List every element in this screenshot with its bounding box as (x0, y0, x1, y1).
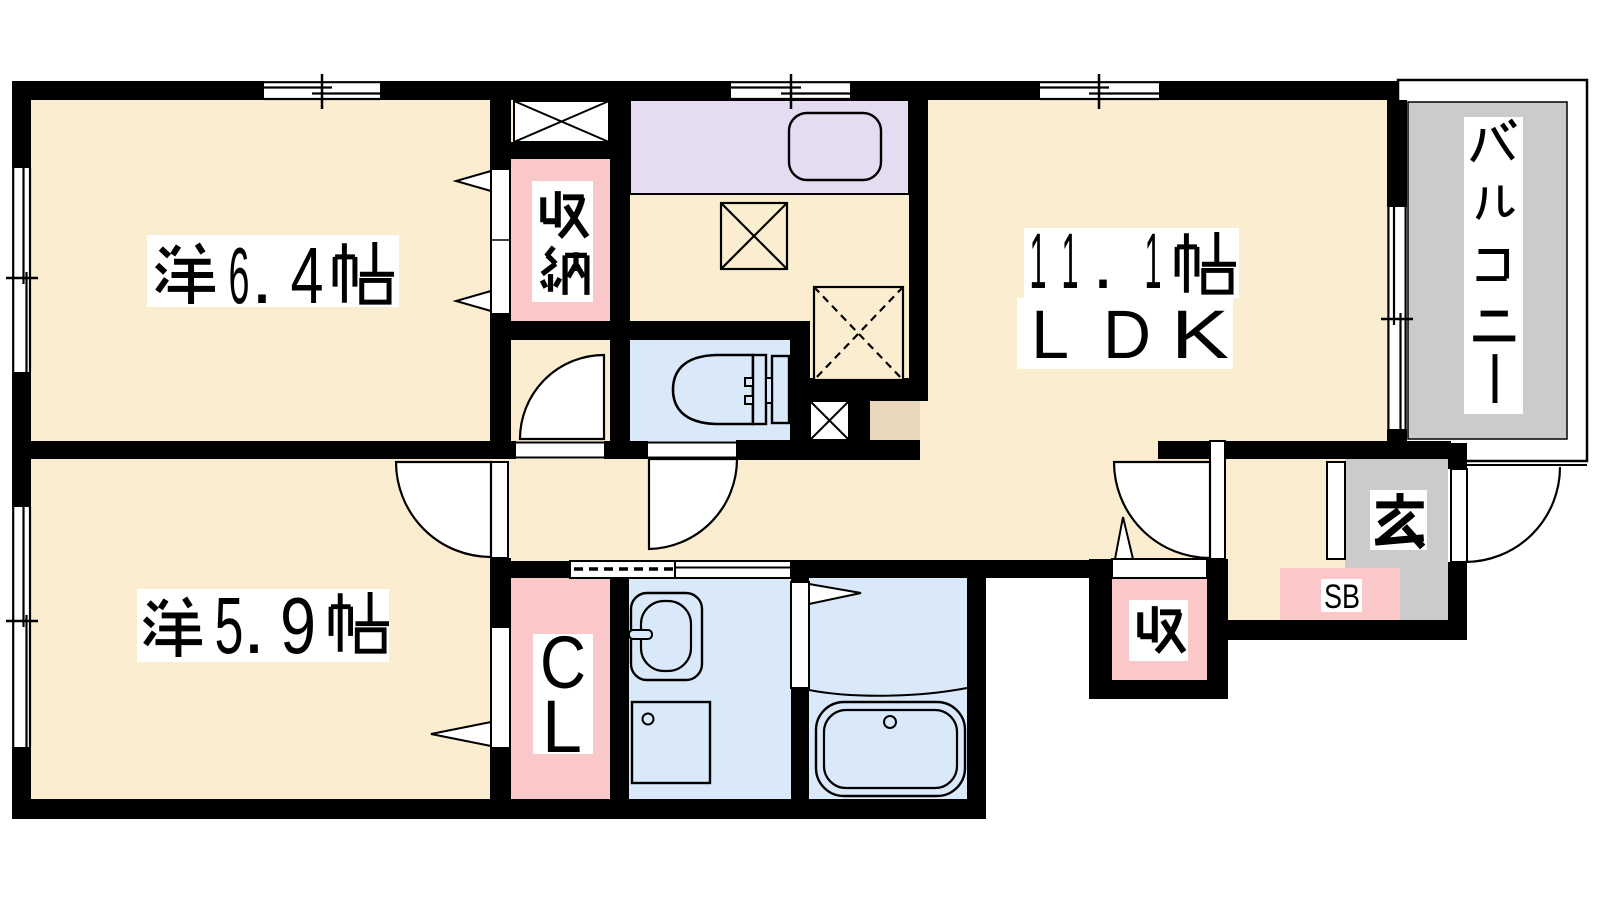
svg-text:SB: SB (1324, 578, 1360, 616)
svg-text:.: . (1092, 216, 1114, 305)
svg-text:9: 9 (280, 581, 316, 670)
svg-text:L: L (1031, 296, 1069, 373)
svg-text:1: 1 (1030, 216, 1047, 305)
svg-text:D: D (1103, 296, 1151, 373)
svg-text:5: 5 (215, 581, 244, 670)
svg-text:1: 1 (1145, 216, 1162, 305)
svg-text:L: L (542, 685, 582, 768)
svg-text:1: 1 (1062, 216, 1079, 305)
svg-text:.: . (251, 231, 273, 320)
svg-text:K: K (1171, 296, 1229, 373)
svg-text:4: 4 (291, 231, 324, 320)
svg-text:.: . (243, 581, 265, 670)
svg-text:6: 6 (229, 231, 250, 320)
